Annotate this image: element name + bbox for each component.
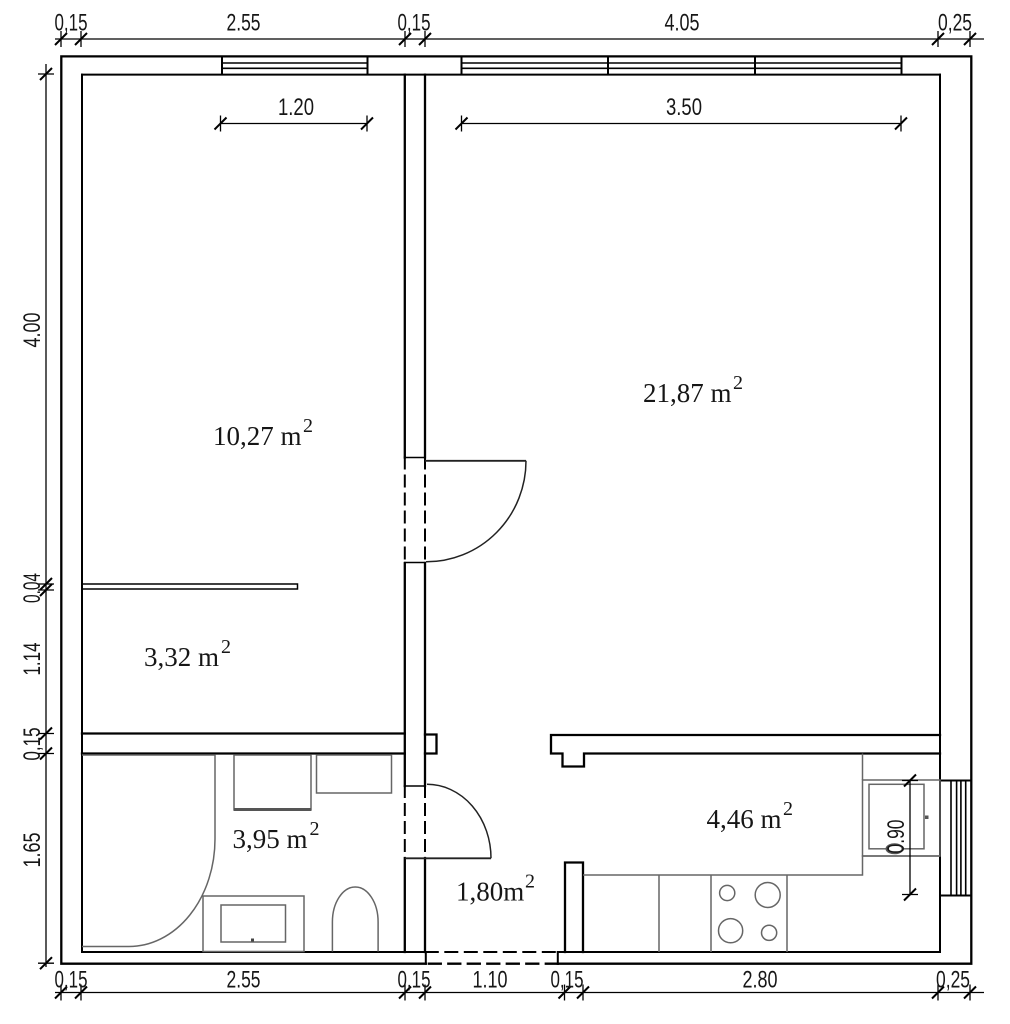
svg-text:3,32 m: 3,32 m bbox=[144, 642, 219, 672]
svg-text:21,87 m: 21,87 m bbox=[643, 378, 732, 408]
svg-text:2.55: 2.55 bbox=[227, 967, 261, 994]
svg-text:2: 2 bbox=[310, 818, 320, 840]
svg-text:1.65: 1.65 bbox=[19, 833, 46, 868]
svg-text:2: 2 bbox=[303, 415, 313, 437]
svg-text:3,95 m: 3,95 m bbox=[233, 824, 308, 854]
svg-text:2.55: 2.55 bbox=[227, 10, 261, 37]
svg-text:0,25: 0,25 bbox=[938, 10, 972, 37]
svg-text:0,15: 0,15 bbox=[19, 728, 46, 761]
svg-text:0.04: 0.04 bbox=[19, 573, 46, 603]
svg-text:3.50: 3.50 bbox=[666, 94, 702, 121]
svg-text:1.14: 1.14 bbox=[19, 643, 46, 676]
svg-text:2: 2 bbox=[733, 372, 743, 394]
svg-text:2.80: 2.80 bbox=[743, 967, 778, 994]
svg-text:2: 2 bbox=[221, 636, 231, 658]
svg-text:0,15: 0,15 bbox=[55, 10, 88, 37]
svg-text:0,25: 0,25 bbox=[936, 967, 970, 994]
svg-text:0,15: 0,15 bbox=[55, 967, 88, 994]
svg-text:0,15: 0,15 bbox=[398, 10, 431, 37]
svg-text:1.10: 1.10 bbox=[473, 967, 508, 994]
svg-text:10,27 m: 10,27 m bbox=[213, 421, 302, 451]
svg-text:0,15: 0,15 bbox=[398, 967, 431, 994]
svg-text:2: 2 bbox=[783, 798, 793, 820]
svg-text:1,80m: 1,80m bbox=[456, 877, 524, 907]
svg-text:4.00: 4.00 bbox=[19, 313, 46, 348]
svg-text:0.90: 0.90 bbox=[883, 820, 910, 854]
svg-text:2: 2 bbox=[525, 871, 535, 893]
svg-text:1.20: 1.20 bbox=[278, 94, 314, 121]
svg-text:4.05: 4.05 bbox=[665, 10, 700, 37]
svg-text:0,15: 0,15 bbox=[551, 967, 584, 994]
svg-text:4,46 m: 4,46 m bbox=[707, 804, 782, 834]
